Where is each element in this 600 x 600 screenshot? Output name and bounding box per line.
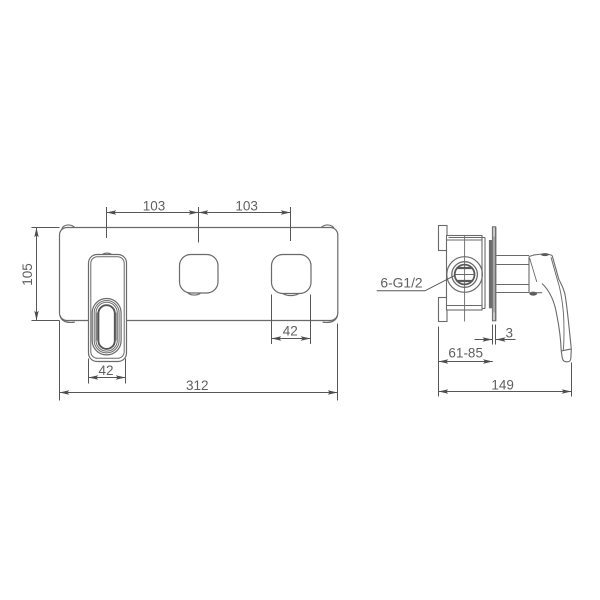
svg-text:6-G1/2: 6-G1/2 bbox=[380, 276, 422, 291]
svg-text:42: 42 bbox=[283, 323, 298, 338]
svg-text:105: 105 bbox=[20, 263, 35, 286]
svg-text:312: 312 bbox=[186, 378, 209, 393]
svg-text:103: 103 bbox=[143, 198, 166, 213]
svg-text:103: 103 bbox=[235, 198, 258, 213]
svg-text:149: 149 bbox=[491, 377, 514, 392]
svg-text:42: 42 bbox=[98, 363, 113, 378]
svg-text:61-85: 61-85 bbox=[448, 345, 483, 360]
svg-text:3: 3 bbox=[506, 326, 514, 341]
